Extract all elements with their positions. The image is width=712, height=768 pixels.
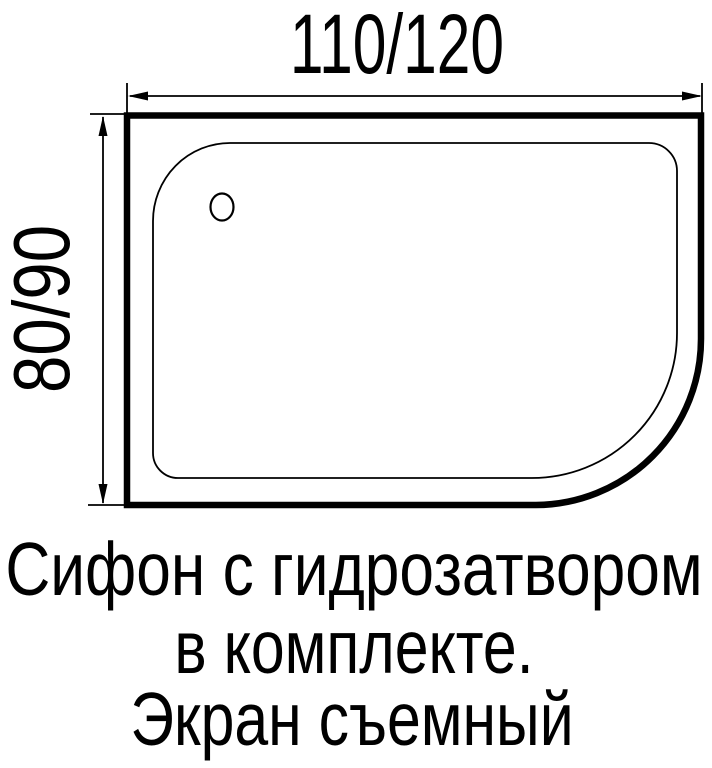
caption-line-2: в комплекте. xyxy=(174,610,533,685)
tray-inner-outline xyxy=(153,143,677,478)
width-dimension-line xyxy=(127,83,702,116)
caption-line-3: Экран съемный xyxy=(130,682,573,757)
arrow-down-icon xyxy=(99,484,108,504)
caption-line-1: Сифон с гидрозатвором xyxy=(5,532,702,607)
shower-tray-technical-drawing: 110/120 80/90 Сифон с гидрозатвором в xyxy=(0,0,712,768)
arrow-left-icon xyxy=(128,92,148,101)
arrow-up-icon xyxy=(99,116,108,136)
drain-hole xyxy=(211,194,234,221)
depth-dimension-line xyxy=(88,114,128,505)
arrow-right-icon xyxy=(682,92,702,101)
tray-outer-outline xyxy=(127,116,701,506)
